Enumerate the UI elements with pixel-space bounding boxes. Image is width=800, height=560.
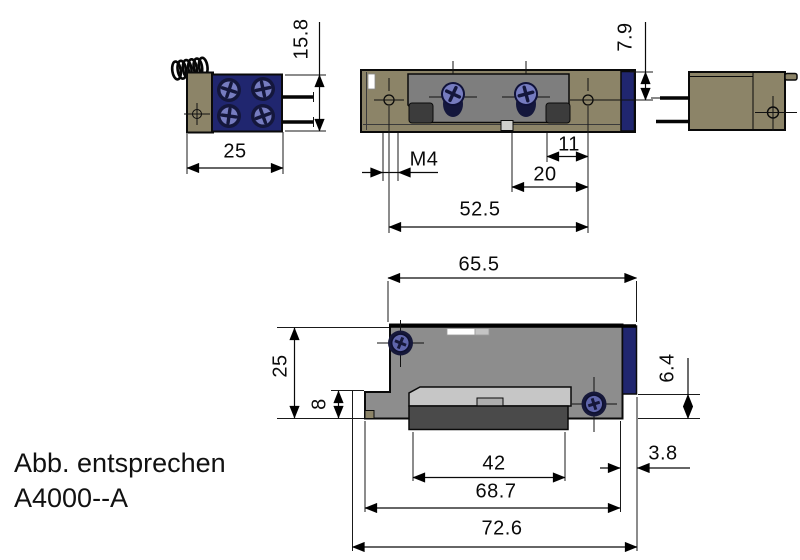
dim-top-offset: 7.9 bbox=[615, 22, 638, 51]
dim-72-6: 72.6 bbox=[482, 518, 523, 541]
dim-11: 11 bbox=[558, 134, 580, 157]
dim-thread: M4 bbox=[410, 149, 439, 172]
technical-drawing: 15.8 25 7.9 M4 11 20 52.5 65.5 25 8 6.4 … bbox=[0, 0, 800, 560]
dim-68-7: 68.7 bbox=[476, 481, 517, 504]
dim-end-height: 15.8 bbox=[291, 19, 314, 60]
end-strip bbox=[621, 72, 635, 132]
bottom-tab bbox=[501, 121, 513, 131]
caption: Abb. entsprechen A4000--A bbox=[14, 446, 226, 516]
dim-52-5: 52.5 bbox=[460, 199, 501, 222]
dim-6-4: 6.4 bbox=[657, 353, 680, 382]
bump-left bbox=[409, 103, 433, 123]
dim-42: 42 bbox=[482, 453, 505, 476]
dim-front-height: 25 bbox=[270, 354, 293, 377]
caption-line1: Abb. entsprechen bbox=[14, 446, 226, 481]
top-tab bbox=[785, 74, 797, 81]
top-view bbox=[361, 22, 653, 233]
dim-65-5: 65.5 bbox=[459, 254, 500, 277]
dim-step: 8 bbox=[309, 398, 332, 410]
front-end-strip bbox=[623, 326, 637, 394]
bump-right bbox=[546, 103, 570, 123]
keeper-tab bbox=[477, 398, 503, 407]
dim-3-8: 3.8 bbox=[648, 443, 677, 466]
caption-line2: A4000--A bbox=[14, 481, 226, 516]
front-view bbox=[277, 278, 700, 551]
dim-20: 20 bbox=[533, 164, 556, 187]
connector-view bbox=[651, 72, 797, 131]
dim-end-width: 25 bbox=[223, 141, 246, 164]
keeper-bar bbox=[409, 406, 568, 430]
